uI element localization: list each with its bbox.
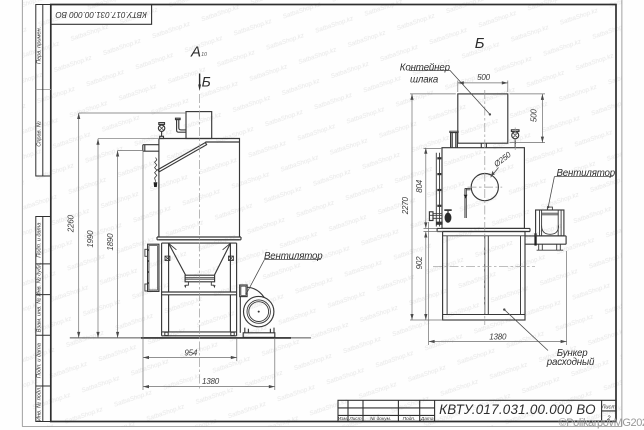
svg-text:Б: Б (475, 35, 485, 52)
svg-text:1990: 1990 (86, 230, 95, 248)
svg-text:Взам. инв. №: Взам. инв. № (37, 298, 43, 333)
svg-text:Б: Б (202, 73, 211, 89)
svg-text:Инв. № дубл.: Инв. № дубл. (37, 262, 43, 296)
svg-text:Вентилятор: Вентилятор (557, 168, 616, 179)
svg-text:2270: 2270 (401, 197, 410, 216)
svg-text:КВТУ.017.031.00.000 ВО: КВТУ.017.031.00.000 ВО (439, 402, 596, 417)
svg-text:804: 804 (415, 179, 424, 192)
svg-text:Инв. № подл.: Инв. № подл. (37, 386, 43, 421)
svg-text:10: 10 (201, 52, 207, 58)
svg-text:КВТУ.017.031.00.000 ВО: КВТУ.017.031.00.000 ВО (55, 10, 147, 19)
svg-text:500: 500 (529, 109, 538, 122)
svg-text:Подп. и дата: Подп. и дата (37, 222, 43, 258)
svg-text:©PolikarpovMG2021: ©PolikarpovMG2021 (559, 417, 644, 429)
svg-text:Контейнер: Контейнер (400, 62, 451, 73)
svg-text:Дата: Дата (420, 416, 434, 422)
svg-text:1890: 1890 (106, 233, 115, 251)
svg-text:Подп.: Подп. (403, 416, 416, 422)
svg-text:1380: 1380 (202, 377, 220, 386)
svg-text:Лист: Лист (348, 416, 361, 422)
svg-text:шлака: шлака (410, 75, 439, 86)
svg-text:954: 954 (184, 348, 197, 357)
svg-text:1380: 1380 (489, 332, 507, 341)
svg-text:Перв. примен.: Перв. примен. (37, 27, 43, 64)
svg-text:№ докум.: № докум. (370, 416, 391, 422)
svg-text:А: А (190, 44, 201, 61)
svg-text:Лист: Лист (601, 405, 617, 411)
svg-text:2260: 2260 (67, 215, 76, 234)
svg-text:500: 500 (477, 73, 490, 82)
svg-text:Подп. и дата: Подп. и дата (37, 342, 43, 378)
svg-text:расходный: расходный (546, 357, 595, 368)
svg-text:Изм.: Изм. (338, 416, 348, 422)
svg-text:Вентилятор: Вентилятор (264, 251, 323, 262)
svg-text:902: 902 (415, 256, 424, 269)
svg-text:Справ. №: Справ. № (37, 121, 43, 147)
